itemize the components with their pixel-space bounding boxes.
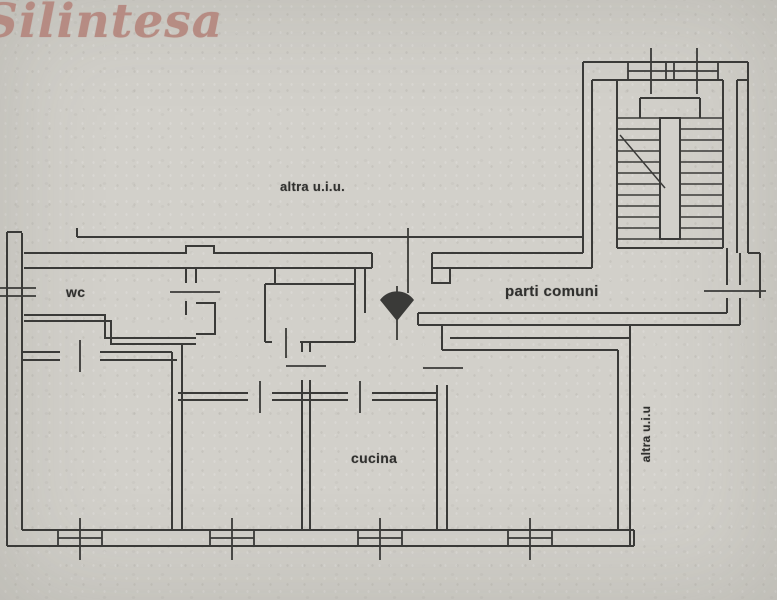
jamb-block — [432, 268, 450, 283]
label-altra-uiu-top: altra u.i.u. — [280, 179, 345, 194]
window-symbol — [58, 518, 552, 560]
room-divider-walls — [172, 325, 630, 546]
left-exterior-wall — [0, 232, 36, 546]
kitchen-top-wall — [442, 338, 630, 350]
scanned-floorplan-page: Silintesa — [0, 0, 777, 600]
label-cucina: cucina — [351, 450, 397, 466]
floorplan-drawing — [0, 0, 777, 600]
stair-top-windows — [628, 48, 718, 94]
bottom-exterior-wall — [7, 518, 634, 560]
bathroom-walls — [265, 268, 365, 358]
staircase — [583, 48, 748, 268]
label-parti-comuni: parti comuni — [505, 283, 599, 300]
wall-jut — [196, 303, 215, 334]
wc-room-walls — [24, 268, 220, 344]
left-window-symbol — [0, 288, 36, 296]
entrance-door-swing — [380, 286, 414, 340]
label-altra-uiu-right: altra u.i.u — [639, 406, 653, 463]
middle-partition-wall — [178, 381, 437, 413]
stair-landing — [640, 98, 700, 118]
stair-newel — [660, 118, 680, 239]
label-wc: wc — [66, 284, 85, 300]
